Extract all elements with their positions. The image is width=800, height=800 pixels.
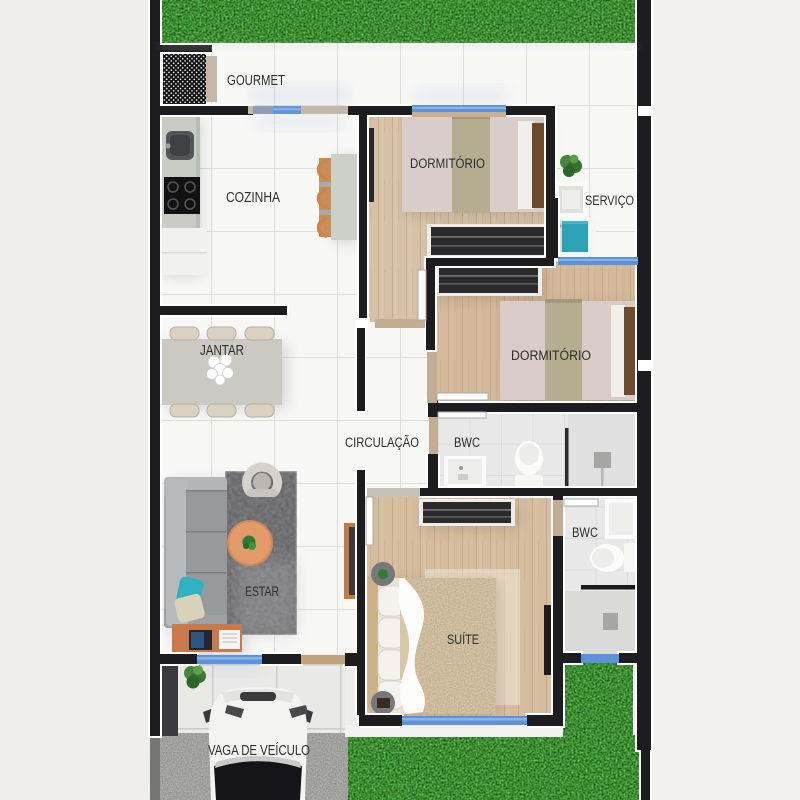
- svg-text:JANTAR: JANTAR: [200, 342, 244, 359]
- svg-text:ESTAR: ESTAR: [245, 584, 279, 599]
- svg-text:BWC: BWC: [454, 435, 480, 450]
- svg-text:SERVIÇO: SERVIÇO: [585, 193, 634, 208]
- svg-text:DORMITÓRIO: DORMITÓRIO: [511, 348, 591, 363]
- svg-text:GOURMET: GOURMET: [227, 72, 285, 89]
- svg-text:DORMITÓRIO: DORMITÓRIO: [410, 156, 485, 171]
- svg-text:BWC: BWC: [572, 525, 598, 540]
- svg-text:CIRCULAÇÃO: CIRCULAÇÃO: [345, 435, 419, 450]
- svg-text:SUÍTE: SUÍTE: [447, 632, 479, 647]
- svg-text:COZINHA: COZINHA: [226, 189, 280, 206]
- svg-text:VAGA DE VEÍCULO: VAGA DE VEÍCULO: [208, 742, 310, 759]
